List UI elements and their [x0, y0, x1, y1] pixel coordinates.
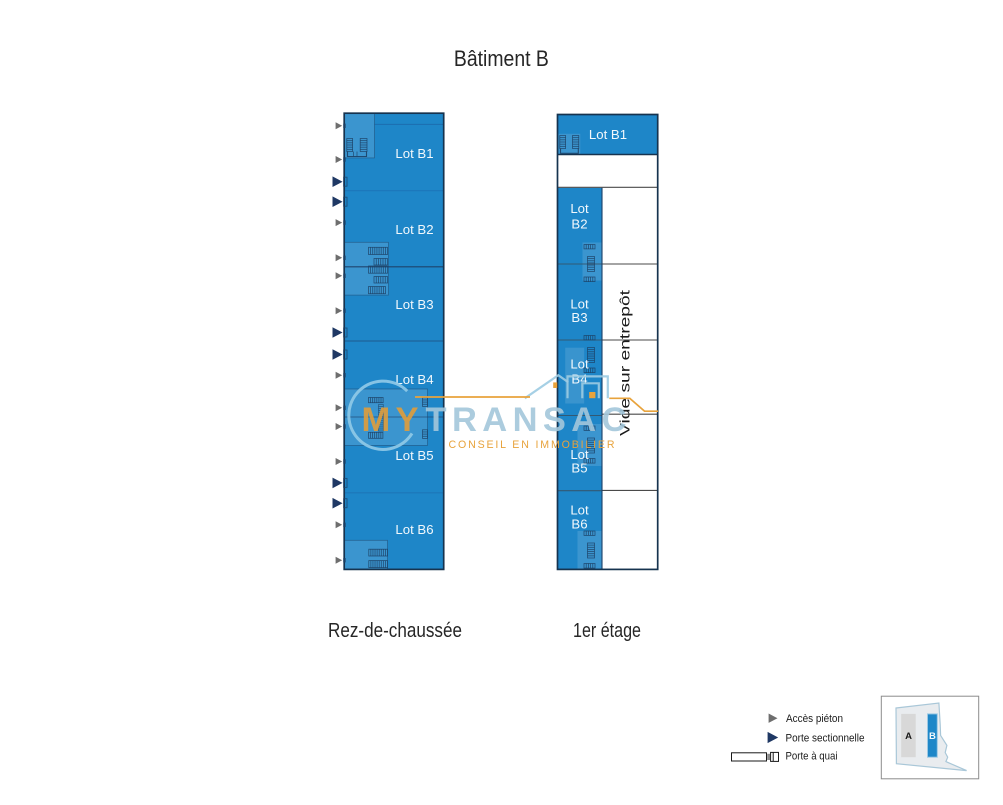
svg-text:Lot B1: Lot B1	[395, 146, 433, 161]
svg-text:Porte sectionnelle: Porte sectionnelle	[786, 733, 865, 745]
svg-text:MY: MY	[362, 401, 419, 439]
svg-text:Porte à quai: Porte à quai	[786, 751, 838, 763]
svg-text:Lot B5: Lot B5	[395, 448, 433, 463]
svg-text:Lot B2: Lot B2	[395, 222, 433, 237]
svg-text:1er étage: 1er étage	[573, 620, 641, 642]
svg-text:Lot B1: Lot B1	[589, 127, 627, 142]
svg-text:Accès piéton: Accès piéton	[786, 713, 843, 725]
svg-text:B3: B3	[571, 310, 587, 325]
svg-text:Lot: Lot	[570, 502, 589, 517]
svg-text:Rez-de-chaussée: Rez-de-chaussée	[328, 620, 462, 642]
svg-text:Lot: Lot	[570, 201, 589, 216]
svg-text:B5: B5	[571, 460, 587, 475]
svg-text:B6: B6	[571, 516, 587, 531]
svg-text:CONSEIL EN IMMOBILIER: CONSEIL EN IMMOBILIER	[449, 439, 615, 451]
svg-text:A: A	[905, 731, 912, 742]
svg-text:Bâtiment B: Bâtiment B	[454, 46, 549, 71]
svg-text:B2: B2	[571, 216, 587, 231]
svg-text:B: B	[929, 731, 936, 742]
svg-text:Lot B3: Lot B3	[395, 297, 433, 312]
svg-text:Lot: Lot	[570, 356, 589, 371]
svg-text:Lot B6: Lot B6	[395, 522, 433, 537]
